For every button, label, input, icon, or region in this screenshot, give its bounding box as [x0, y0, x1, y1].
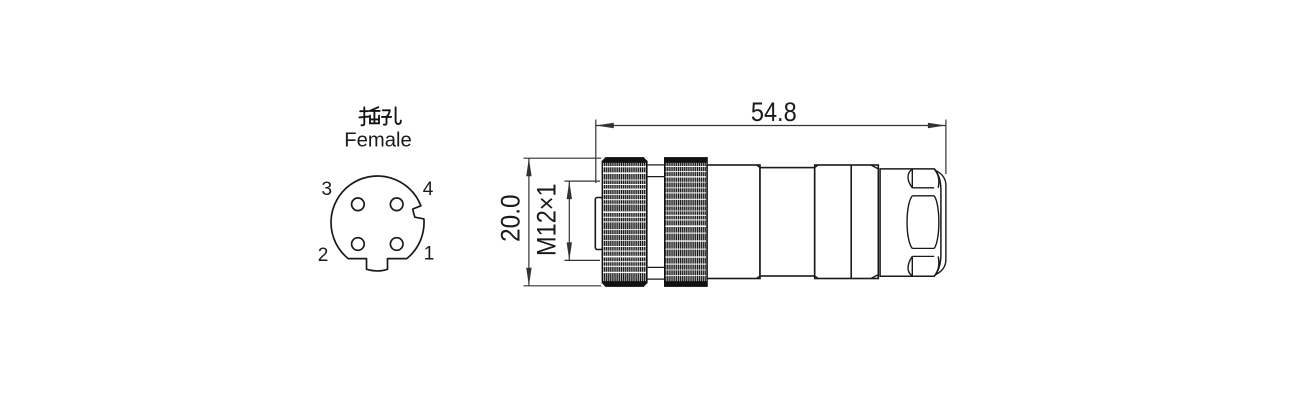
svg-text:54.8: 54.8 — [751, 97, 797, 127]
svg-text:Female: Female — [344, 129, 412, 152]
svg-text:3: 3 — [322, 179, 333, 200]
svg-text:1: 1 — [424, 243, 435, 264]
svg-text:M12×1: M12×1 — [532, 183, 562, 256]
svg-text:20.0: 20.0 — [496, 194, 526, 242]
svg-text:2: 2 — [318, 245, 329, 266]
svg-text:4: 4 — [423, 179, 434, 200]
